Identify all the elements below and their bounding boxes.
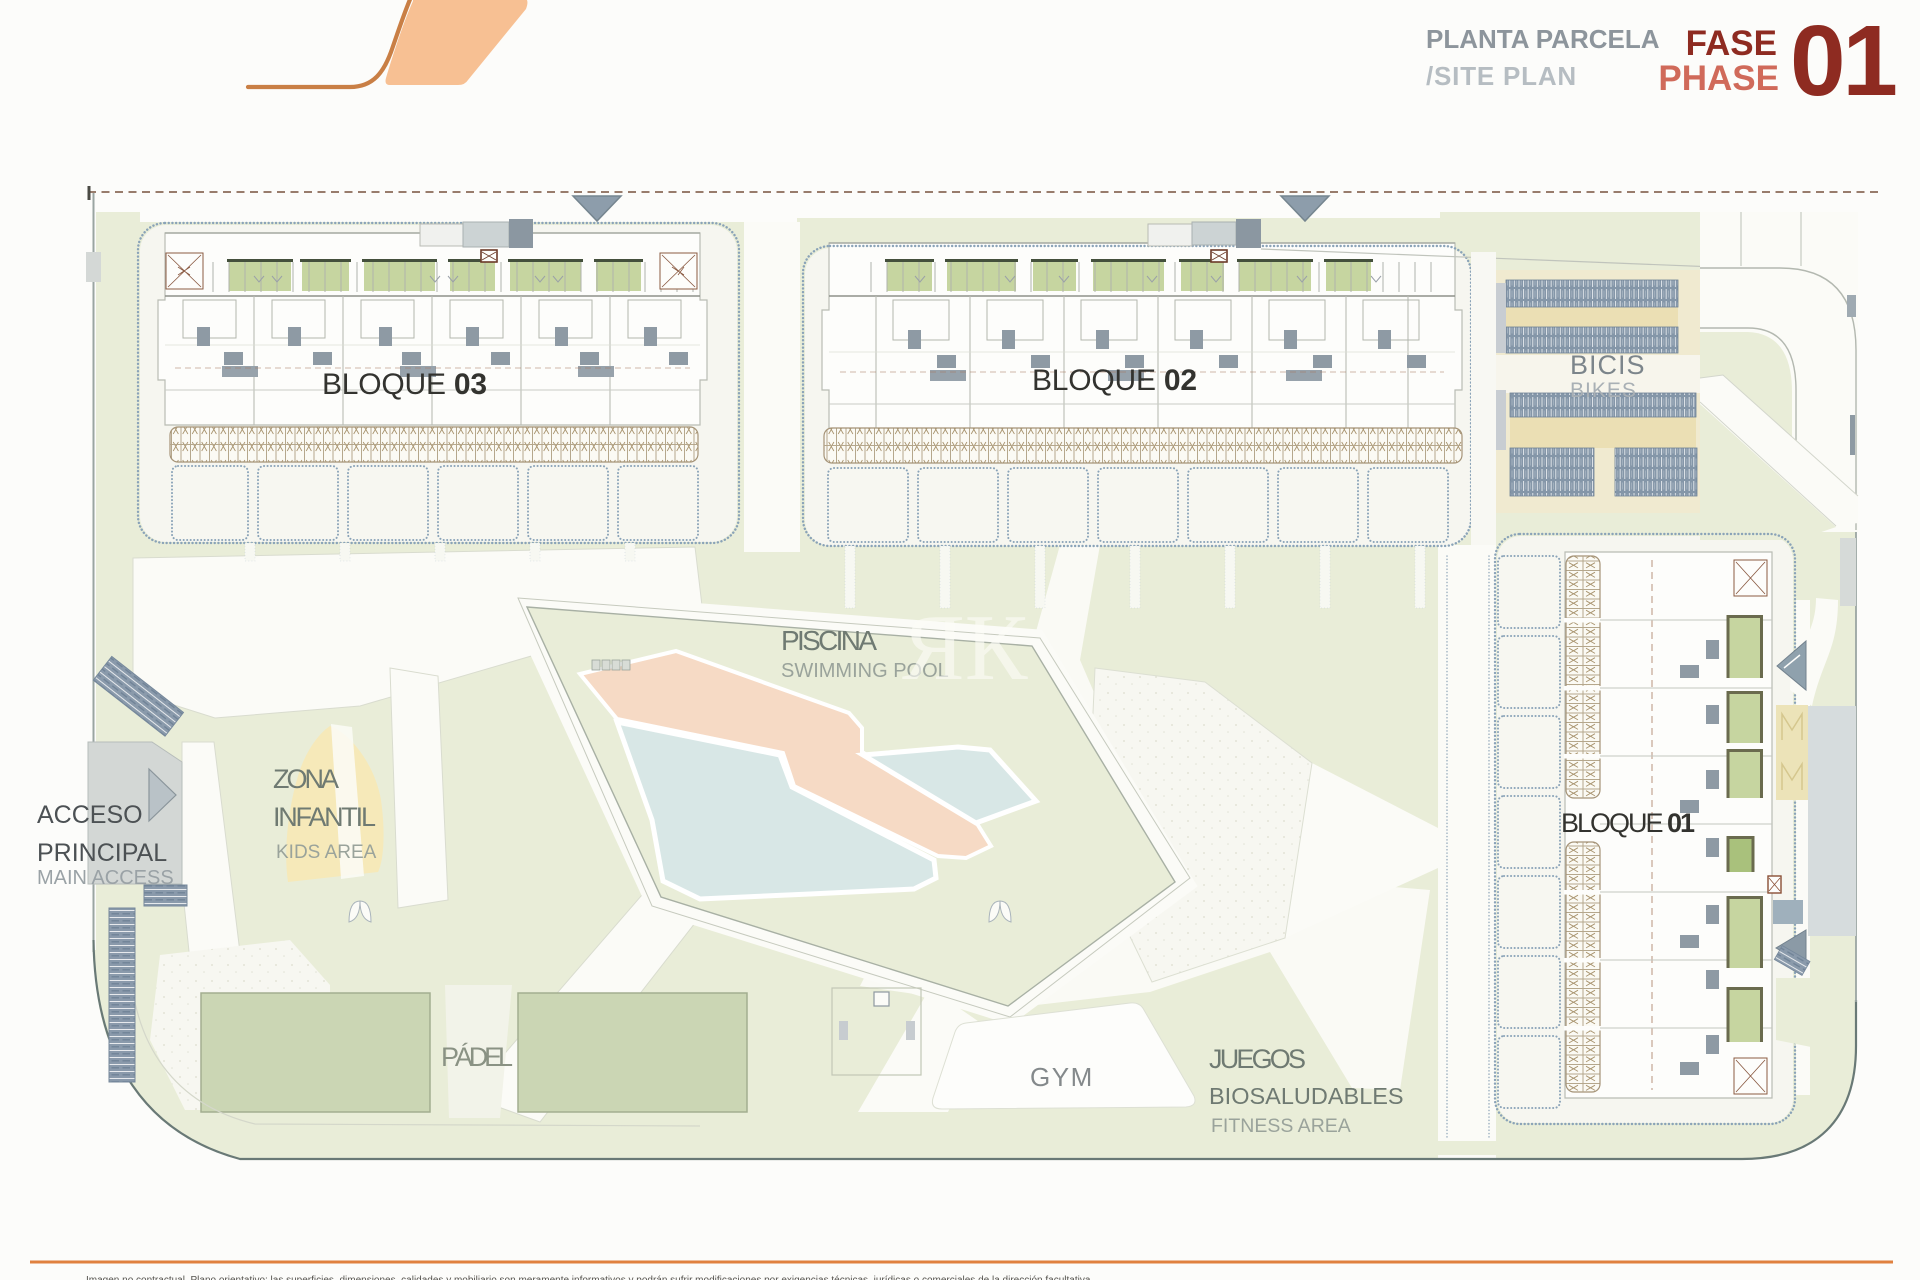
svg-text:FASE: FASE	[1686, 24, 1777, 63]
svg-text:PRINCIPAL: PRINCIPAL	[37, 839, 167, 867]
svg-text:/SITE PLAN: /SITE PLAN	[1426, 61, 1577, 91]
svg-text:BLOQUE 03: BLOQUE 03	[322, 368, 487, 401]
svg-text:ZONA: ZONA	[273, 764, 340, 794]
svg-text:INFANTIL: INFANTIL	[273, 802, 377, 832]
svg-text:GYM: GYM	[1030, 1062, 1094, 1092]
svg-text:PISCINA: PISCINA	[781, 625, 878, 656]
svg-text:PHASE: PHASE	[1658, 59, 1779, 98]
svg-text:Imagen no contractual. Plano o: Imagen no contractual. Plano orientativo…	[86, 1275, 1093, 1280]
svg-text:ЯК: ЯК	[902, 596, 1029, 700]
svg-text:01: 01	[1790, 5, 1898, 117]
svg-text:BLOQUE 02: BLOQUE 02	[1032, 364, 1197, 397]
svg-text:PÁDEL: PÁDEL	[441, 1042, 513, 1072]
svg-text:JUEGOS: JUEGOS	[1209, 1044, 1307, 1074]
svg-text:MAIN ACCESS: MAIN ACCESS	[37, 867, 174, 889]
svg-text:BIKES: BIKES	[1570, 379, 1637, 402]
svg-text:BICIS: BICIS	[1570, 350, 1646, 380]
svg-text:PLANTA PARCELA: PLANTA PARCELA	[1426, 24, 1660, 54]
svg-text:KIDS AREA: KIDS AREA	[276, 842, 377, 863]
svg-text:BLOQUE 01: BLOQUE 01	[1561, 808, 1695, 838]
svg-text:FITNESS AREA: FITNESS AREA	[1211, 1115, 1351, 1137]
svg-text:ACCESO: ACCESO	[37, 801, 143, 829]
svg-text:BIOSALUDABLES: BIOSALUDABLES	[1209, 1083, 1404, 1109]
